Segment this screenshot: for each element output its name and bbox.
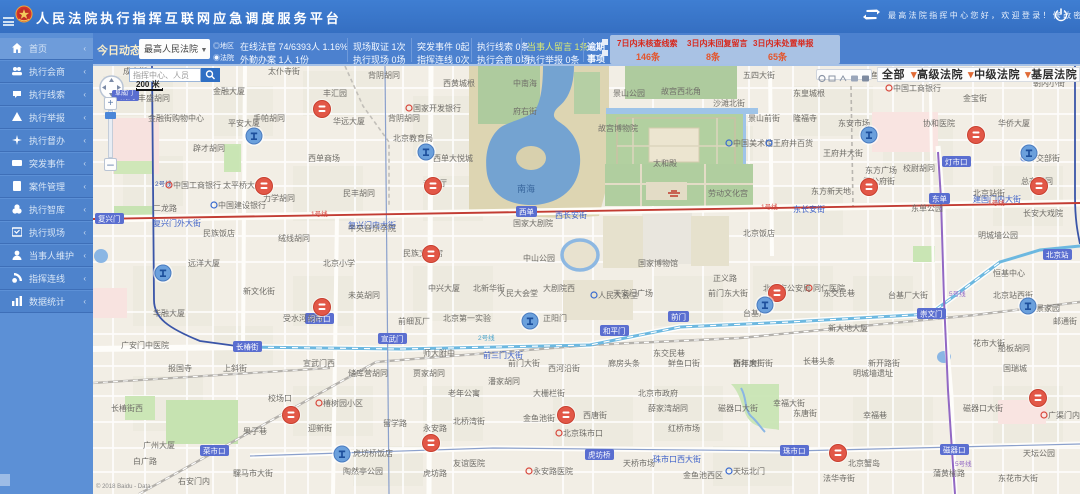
svg-text:红桥市场: 红桥市场: [668, 423, 700, 433]
svg-text:中国美术馆: 中国美术馆: [733, 138, 773, 148]
svg-text:前门: 前门: [671, 312, 686, 322]
svg-text:1号线: 1号线: [311, 209, 328, 218]
svg-text:天坛北门: 天坛北门: [733, 466, 765, 476]
svg-text:老年公寓: 老年公寓: [448, 388, 480, 398]
svg-text:天坛公园: 天坛公园: [1023, 448, 1055, 458]
svg-text:太和殿: 太和殿: [653, 158, 677, 168]
svg-text:白广路: 白广路: [133, 456, 157, 466]
svg-text:虎坊桥饭店: 虎坊桥饭店: [353, 448, 393, 458]
svg-text:宣武门: 宣武门: [381, 334, 404, 344]
svg-text:中山公园: 中山公园: [523, 253, 555, 263]
svg-text:虎坊路: 虎坊路: [423, 468, 447, 478]
svg-text:王府井百货: 王府井百货: [773, 138, 813, 148]
svg-text:虎坊桥: 虎坊桥: [588, 450, 611, 460]
svg-text:和平门: 和平门: [603, 327, 626, 336]
svg-text:騾马市大街: 騾马市大街: [233, 468, 273, 478]
svg-text:东交民巷: 东交民巷: [823, 288, 855, 298]
svg-text:北新华街: 北新华街: [473, 283, 505, 293]
svg-text:师大附中: 师大附中: [423, 348, 455, 358]
svg-text:潘家胡同: 潘家胡同: [488, 376, 520, 386]
svg-text:长巷头条: 长巷头条: [803, 356, 835, 366]
svg-text:校尉胡同: 校尉胡同: [903, 163, 935, 173]
svg-text:右安门内: 右安门内: [178, 476, 210, 486]
svg-text:民丰胡同: 民丰胡同: [343, 188, 375, 198]
svg-text:前细瓦厂: 前细瓦厂: [398, 316, 430, 326]
svg-text:背阴胡同: 背阴胡同: [388, 113, 420, 123]
svg-text:上斜街: 上斜街: [223, 363, 247, 373]
svg-text:明城墙公园: 明城墙公园: [978, 230, 1018, 240]
svg-text:西单商场: 西单商场: [308, 153, 340, 163]
svg-text:友谊医院: 友谊医院: [453, 458, 485, 468]
svg-text:沙滩北街: 沙滩北街: [713, 98, 745, 108]
svg-text:薛家湾胡同: 薛家湾胡同: [648, 403, 688, 413]
svg-text:幸福巷: 幸福巷: [863, 411, 887, 420]
svg-text:辟才胡同: 辟才胡同: [193, 143, 225, 153]
svg-text:东交民巷: 东交民巷: [653, 348, 685, 358]
svg-text:金鱼池西区: 金鱼池西区: [683, 470, 723, 480]
svg-text:1号线: 1号线: [988, 198, 1005, 207]
svg-text:中国工商银行: 中国工商银行: [893, 83, 941, 93]
svg-text:新文化街: 新文化街: [243, 286, 275, 296]
svg-text:手帕胡同: 手帕胡同: [253, 113, 285, 123]
svg-text:永安路: 永安路: [423, 423, 447, 433]
svg-text:中国建设银行: 中国建设银行: [218, 200, 266, 210]
svg-text:东方新天地: 东方新天地: [811, 186, 851, 196]
svg-text:华远大厦: 华远大厦: [333, 116, 365, 126]
svg-text:复兴门外大街: 复兴门外大街: [153, 218, 201, 228]
svg-text:国家博物馆: 国家博物馆: [638, 258, 678, 268]
svg-text:磁器口: 磁器口: [943, 445, 966, 455]
svg-text:华融大厦: 华融大厦: [153, 308, 185, 318]
svg-text:景山公园: 景山公园: [613, 88, 645, 98]
svg-text:北京站街: 北京站街: [973, 188, 1005, 198]
svg-text:东方广场: 东方广场: [865, 165, 897, 175]
svg-text:中南海: 中南海: [513, 78, 537, 88]
svg-text:国家开发银行: 国家开发银行: [413, 103, 461, 113]
svg-text:贾家胡同: 贾家胡同: [413, 368, 445, 378]
svg-text:永安路医院: 永安路医院: [533, 466, 573, 476]
svg-text:蒲黄榆路: 蒲黄榆路: [933, 468, 965, 478]
svg-text:5号线: 5号线: [949, 289, 966, 298]
svg-text:2号线: 2号线: [155, 179, 172, 188]
svg-text:景山前街: 景山前街: [748, 113, 780, 123]
svg-text:东长安街: 东长安街: [793, 204, 825, 214]
svg-text:复兴门: 复兴门: [98, 214, 121, 224]
svg-text:北京饭店: 北京饭店: [743, 228, 775, 238]
svg-text:法华寺街: 法华寺街: [823, 473, 855, 483]
svg-text:广州大厦: 广州大厦: [143, 440, 175, 450]
svg-text:华侨大厦: 华侨大厦: [998, 118, 1030, 128]
svg-text:正阳门: 正阳门: [543, 313, 567, 323]
svg-text:太仆寺街: 太仆寺街: [268, 66, 300, 76]
svg-text:丰盛胡同: 丰盛胡同: [138, 93, 170, 103]
svg-text:西河沿街: 西河沿街: [548, 363, 580, 373]
svg-text:报国寺: 报国寺: [168, 363, 192, 373]
svg-text:北京蟹岛: 北京蟹岛: [848, 458, 880, 468]
svg-text:金融街购物中心: 金融街购物中心: [148, 113, 204, 123]
svg-text:北京站: 北京站: [1046, 250, 1069, 260]
svg-text:果子巷: 果子巷: [243, 427, 267, 436]
svg-text:国瑞城: 国瑞城: [1003, 363, 1027, 373]
svg-text:未英胡同: 未英胡同: [348, 290, 380, 300]
svg-text:西黄城根: 西黄城根: [443, 78, 475, 88]
svg-text:背阴胡同: 背阴胡同: [368, 70, 400, 80]
svg-text:隆福寺: 隆福寺: [793, 113, 817, 123]
svg-text:西长安街: 西长安街: [555, 210, 587, 220]
svg-text:宣武门西: 宣武门西: [303, 358, 335, 368]
svg-text:东单: 东单: [932, 194, 947, 204]
svg-text:中央音乐学院: 中央音乐学院: [348, 223, 396, 233]
svg-text:西单大悦城: 西单大悦城: [433, 153, 473, 163]
svg-text:西唐街: 西唐街: [583, 410, 607, 420]
svg-text:长安大戏院: 长安大戏院: [1023, 208, 1063, 218]
svg-text:北桥湾街: 北桥湾街: [453, 416, 485, 426]
svg-text:西打磨厂街: 西打磨厂街: [733, 358, 773, 368]
svg-text:东唐街: 东唐街: [793, 408, 817, 418]
svg-text:长椿街: 长椿街: [236, 342, 259, 352]
svg-text:协和医院: 协和医院: [923, 118, 955, 128]
svg-text:南海: 南海: [517, 183, 535, 194]
svg-text:民族饭店: 民族饭店: [203, 228, 235, 238]
svg-text:西单: 西单: [519, 207, 534, 217]
svg-text:留学路: 留学路: [383, 418, 407, 428]
svg-text:磁器口大街: 磁器口大街: [963, 403, 1003, 413]
svg-text:二龙路: 二龙路: [153, 203, 177, 213]
svg-text:长椿街西: 长椿街西: [111, 403, 143, 413]
svg-text:远洋大厦: 远洋大厦: [188, 258, 220, 268]
svg-text:储库营胡同: 储库营胡同: [348, 368, 388, 378]
svg-text:5号线: 5号线: [955, 459, 972, 468]
svg-text:东单公园: 东单公园: [911, 203, 943, 213]
svg-text:王府井大街: 王府井大街: [823, 148, 863, 158]
svg-text:灯市口: 灯市口: [945, 157, 968, 167]
svg-text:丰汇园: 丰汇园: [323, 88, 347, 98]
svg-text:北京教育局: 北京教育局: [393, 133, 433, 143]
svg-text:人民大会堂: 人民大会堂: [598, 290, 638, 300]
svg-text:台基厂大街: 台基厂大街: [888, 290, 928, 300]
svg-text:新大地大厦: 新大地大厦: [828, 323, 868, 333]
svg-text:船板胡同: 船板胡同: [998, 343, 1030, 353]
svg-text:中国工商银行: 中国工商银行: [173, 180, 221, 190]
svg-text:前门大街: 前门大街: [508, 358, 540, 368]
svg-text:1号线: 1号线: [761, 202, 778, 211]
svg-text:珠市口西大街: 珠市口西大街: [653, 454, 701, 464]
svg-text:大剧院西: 大剧院西: [543, 283, 575, 293]
svg-text:邮通街: 邮通街: [1053, 316, 1077, 326]
svg-text:广安门中医院: 广安门中医院: [121, 340, 169, 350]
svg-text:北京小学: 北京小学: [323, 258, 355, 268]
svg-text:劳动文化宫: 劳动文化宫: [708, 188, 748, 198]
svg-text:新开路街: 新开路街: [868, 358, 900, 368]
svg-text:珠市口: 珠市口: [783, 446, 806, 456]
svg-text:金鱼池街: 金鱼池街: [523, 413, 555, 423]
svg-text:东皇城根: 东皇城根: [793, 88, 825, 98]
svg-text:前门东大街: 前门东大街: [708, 288, 748, 298]
svg-text:磁器口大街: 磁器口大街: [718, 403, 758, 413]
svg-text:迎新街: 迎新街: [308, 423, 332, 433]
svg-text:北京市政府: 北京市政府: [638, 388, 678, 398]
svg-text:大栅栏街: 大栅栏街: [533, 388, 565, 398]
svg-text:崇文门: 崇文门: [920, 309, 943, 319]
svg-text:中兴大厦: 中兴大厦: [428, 283, 460, 293]
svg-text:金融大厦: 金融大厦: [213, 86, 245, 96]
svg-text:府右街: 府右街: [513, 106, 537, 116]
svg-text:陶然亭公园: 陶然亭公园: [343, 466, 383, 476]
svg-text:椿树园小区: 椿树园小区: [323, 398, 363, 408]
svg-text:东花市大街: 东花市大街: [998, 473, 1038, 483]
svg-text:明城墙遗址: 明城墙遗址: [853, 368, 893, 378]
svg-text:校场口: 校场口: [268, 393, 292, 403]
svg-text:2号线: 2号线: [478, 333, 495, 342]
svg-text:北京第一实验: 北京第一实验: [443, 313, 491, 323]
svg-text:鲜鱼口街: 鲜鱼口街: [668, 358, 700, 368]
svg-text:广渠门内: 广渠门内: [1048, 410, 1080, 420]
svg-text:绒线胡同: 绒线胡同: [278, 233, 310, 243]
svg-text:天桥市场: 天桥市场: [623, 458, 655, 468]
svg-text:廊房头条: 廊房头条: [608, 358, 640, 368]
svg-text:故宫西北角: 故宫西北角: [661, 86, 701, 96]
svg-text:故宫博物院: 故宫博物院: [598, 123, 638, 133]
svg-text:幸福大街: 幸福大街: [773, 398, 805, 408]
svg-text:北京珠市口: 北京珠市口: [563, 428, 603, 438]
svg-text:金宝街: 金宝街: [963, 93, 987, 103]
svg-text:五四大街: 五四大街: [743, 70, 775, 80]
svg-text:正义路: 正义路: [713, 273, 737, 283]
svg-text:国家大剧院: 国家大剧院: [513, 218, 553, 228]
svg-text:菜市口: 菜市口: [203, 446, 226, 456]
svg-text:恒基中心: 恒基中心: [993, 268, 1025, 278]
